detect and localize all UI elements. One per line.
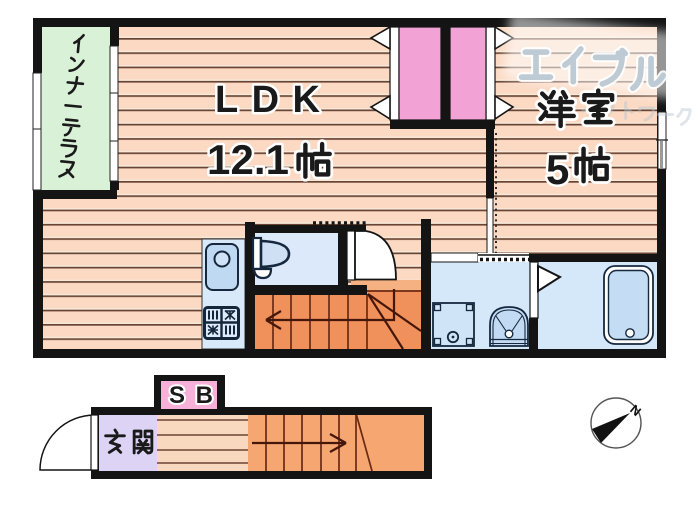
svg-text:S B: S B bbox=[169, 382, 215, 409]
svg-text:5: 5 bbox=[546, 146, 569, 193]
svg-text:LDK: LDK bbox=[215, 79, 321, 121]
svg-text:12.1: 12.1 bbox=[207, 136, 289, 183]
